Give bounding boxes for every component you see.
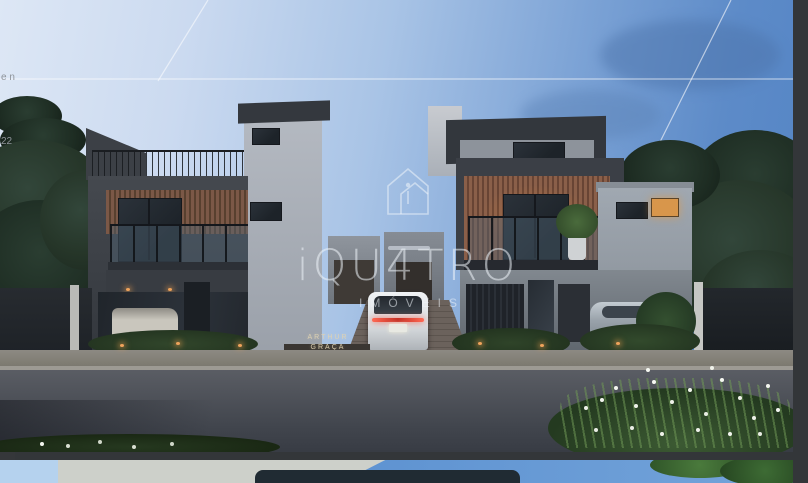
garden-uplight xyxy=(176,342,180,345)
cutoff-text-fragment: e n xyxy=(1,72,15,83)
left-house-tower-cornice xyxy=(238,100,330,123)
garden-uplight xyxy=(120,344,124,347)
right-boundary-wall xyxy=(703,288,793,352)
tower-window xyxy=(250,202,282,221)
ceiling-light xyxy=(168,288,172,291)
lit-window xyxy=(651,198,679,217)
garden-uplight xyxy=(478,342,482,345)
next-photo-dark-shape xyxy=(255,470,520,483)
balcony-plant xyxy=(556,204,598,240)
wing-window xyxy=(616,202,648,219)
plant-pot xyxy=(568,238,586,260)
suv-license-plate xyxy=(389,324,407,332)
left-balcony-slab xyxy=(108,262,248,270)
watermark-subtitle: IMÓVEIS xyxy=(283,296,533,310)
left-white-pillar xyxy=(70,285,79,358)
gallery-photo-current[interactable]: ARTHUR GRAÇA xyxy=(0,0,793,452)
left-house-glass-railing xyxy=(110,224,248,266)
watermark-brand: iQU4TRO xyxy=(283,245,533,288)
sidewalk xyxy=(0,350,793,366)
garden-uplight xyxy=(616,342,620,345)
tower-window xyxy=(252,128,280,145)
gallery-photo-next[interactable] xyxy=(0,460,793,483)
white-wildflowers xyxy=(600,398,604,402)
next-photo-foliage xyxy=(720,460,793,483)
ceiling-light xyxy=(126,288,130,291)
house-outline-icon xyxy=(384,164,432,218)
grass-blades xyxy=(560,378,790,448)
garden-uplight xyxy=(238,344,242,347)
garden-uplight xyxy=(540,344,544,347)
suv-taillight-bar xyxy=(372,318,424,322)
screenshot-root: ARTHUR GRAÇA xyxy=(0,0,808,483)
sign-line-1: ARTHUR xyxy=(292,333,364,343)
left-house-door xyxy=(184,282,210,334)
watermark: iQU4TRO IMÓVEIS xyxy=(283,164,533,310)
small-flowers-left xyxy=(40,442,44,446)
cutoff-text-fragment: 22 xyxy=(1,136,12,147)
